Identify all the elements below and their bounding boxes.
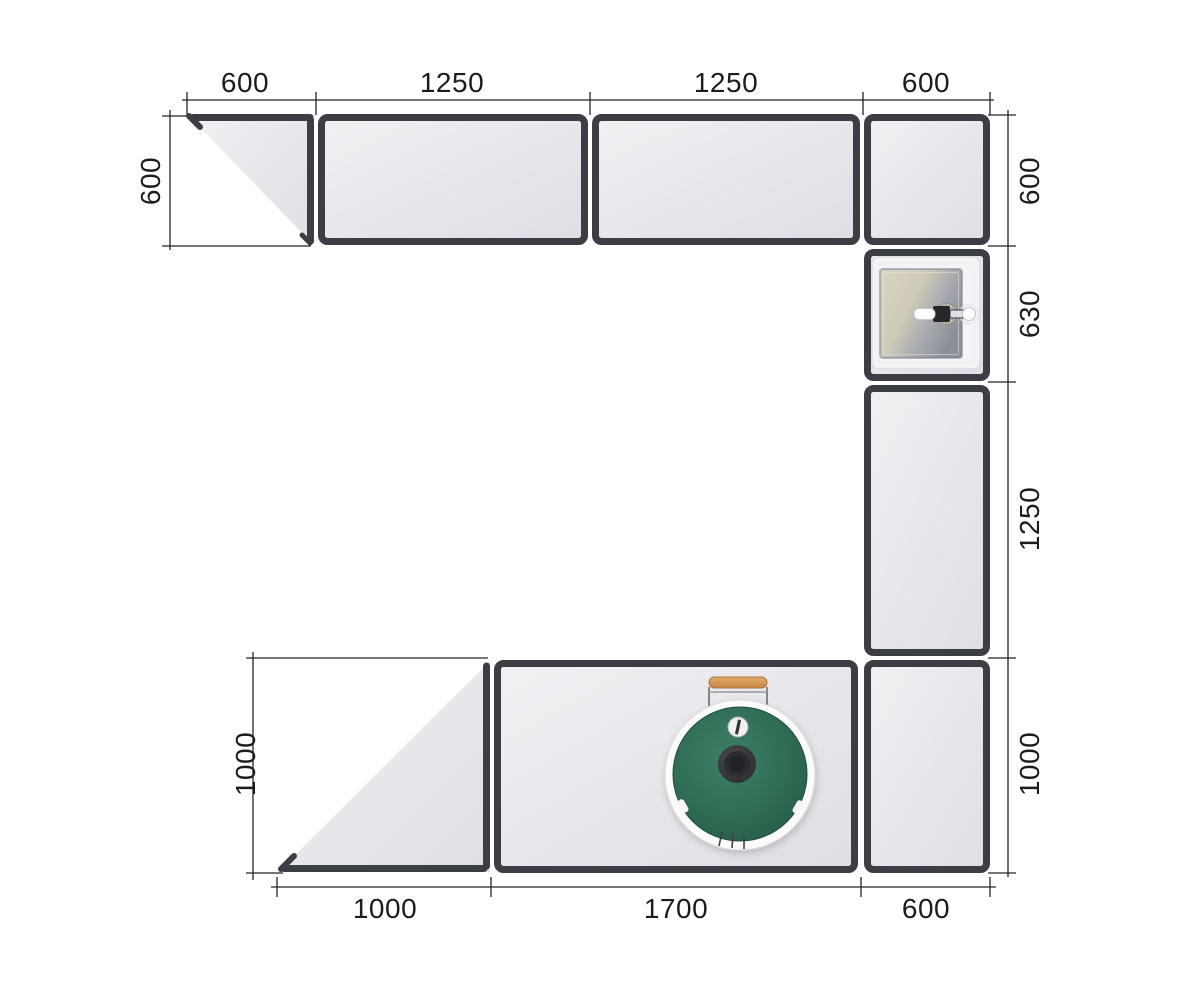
dim-label-bottom-600: 600 [902, 895, 950, 923]
cabinet-top-1250-a [322, 118, 585, 242]
cabinet-corner-600 [868, 118, 987, 242]
cabinet-right-1250 [868, 389, 987, 653]
kitchen-plan-canvas: 600 1250 1250 600 600 1000 600 630 1250 … [0, 0, 1200, 1000]
dim-label-right-1000: 1000 [1016, 732, 1044, 796]
grill-damper-cap [718, 745, 756, 783]
grill-thermometer [728, 717, 748, 737]
dim-label-top-1250-b: 1250 [694, 69, 758, 97]
dim-label-left-600: 600 [137, 157, 165, 205]
dim-label-right-1250: 1250 [1016, 487, 1044, 551]
cabinet-top-1250-b [596, 118, 857, 242]
dim-label-bottom-1000: 1000 [353, 895, 417, 923]
sink-with-faucet-icon [872, 257, 980, 369]
dim-label-right-630: 630 [1016, 290, 1044, 338]
dim-label-top-600-right: 600 [902, 69, 950, 97]
faucet-handle [914, 309, 935, 320]
dim-label-bottom-1700: 1700 [644, 895, 708, 923]
dim-label-right-600: 600 [1016, 157, 1044, 205]
dim-chain-right [988, 110, 1016, 877]
faucet-body [933, 306, 950, 322]
faucet-knob [963, 308, 976, 321]
dim-label-left-1000: 1000 [232, 732, 260, 796]
cabinet-right-1000 [868, 664, 987, 870]
triangle-end-bottom-left [278, 661, 490, 872]
dim-label-top-600-left: 600 [221, 69, 269, 97]
dim-chain-top [182, 92, 994, 115]
dim-label-top-1250-a: 1250 [420, 69, 484, 97]
triangle-end-top-left [187, 114, 314, 245]
